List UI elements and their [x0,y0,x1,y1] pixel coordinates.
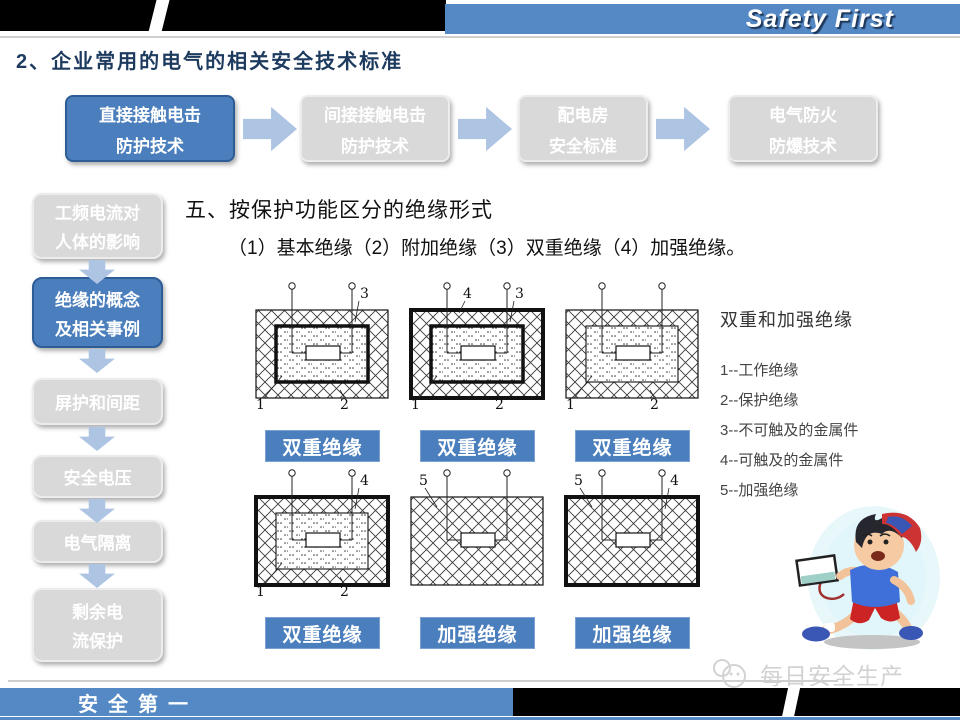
flow-step-label: 直接接触电击 [67,101,233,126]
legend-items: 1--工作绝缘2--保护绝缘3--不可触及的金属件4--可触及的金属件5--加强… [720,356,958,506]
diagram-caption: 加强绝缘 [575,617,690,649]
diagram-part-number: 3 [360,286,369,302]
watermark-text: 每日安全生产 [760,657,904,691]
sidebar-item-4[interactable]: 安全电压 [32,455,163,498]
diagram-part-number: 1 [566,397,575,413]
flow-step-2[interactable]: 间接接触电击防护技术 [300,95,450,162]
flow-step-label: 间接接触电击 [302,101,448,126]
sidebar-item-label: 屏护和间距 [34,389,161,414]
sidebar-item-label: 流保护 [34,627,161,652]
insulation-diagram-2: 4312 [407,278,547,414]
legend-item-3: 3--不可触及的金属件 [720,416,958,446]
diagram-part-number: 5 [574,473,583,489]
header-banner: Safety First [445,4,960,34]
diagram-caption: 双重绝缘 [265,430,380,462]
diagram-part-number: 4 [360,473,369,489]
header-divider-line [0,36,960,38]
flow-step-3[interactable]: 配电房安全标准 [518,95,648,162]
diagram-caption: 双重绝缘 [420,430,535,462]
flow-step-label: 电气防火 [730,101,876,126]
sidebar-item-2[interactable]: 绝缘的概念及相关事例 [32,277,163,348]
legend: 双重和加强绝缘 1--工作绝缘2--保护绝缘3--不可触及的金属件4--可触及的… [720,306,958,506]
diagram-part-number: 1 [256,397,265,413]
down-arrow-icon [79,349,115,373]
flow-step-label: 防护技术 [302,132,448,157]
watermark-logo-icon [710,658,756,690]
diagram-part-number: 1 [411,397,420,413]
flow-step-1[interactable]: 直接接触电击防护技术 [65,95,235,162]
footer-blue-bar: 安全第一 [0,688,513,716]
sidebar-item-5[interactable]: 电气隔离 [32,520,163,563]
diagram-cell-2: 4312双重绝缘 [407,278,547,464]
diagram-cell-5: 5加强绝缘 [407,465,547,651]
insulation-diagram-1: 312 [252,278,392,414]
diagram-part-number: 2 [340,397,349,413]
diagram-cell-3: 12双重绝缘 [562,278,702,464]
sidebar-item-label: 电气隔离 [34,529,161,554]
sidebar-item-label: 安全电压 [34,464,161,489]
sidebar-item-label: 工频电流对 [34,199,161,224]
section-heading: 五、按保护功能区分的绝缘形式 [185,194,493,224]
footer-black-bar [513,688,960,716]
sidebar-item-label: 剩余电 [34,598,161,623]
diagram-part-number: 4 [463,286,472,302]
down-arrow-icon [79,564,115,588]
flow-step-label: 防爆技术 [730,132,876,157]
flow-step-label: 配电房 [520,101,646,126]
right-arrow-icon [458,106,512,152]
diagram-cell-6: 54加强绝缘 [562,465,702,651]
legend-item-1: 1--工作绝缘 [720,356,958,386]
sidebar-item-label: 人体的影响 [34,228,161,253]
diagram-part-number: 4 [670,473,679,489]
diagram-part-number: 5 [419,473,428,489]
footer-divider-line [8,680,838,682]
down-arrow-icon [79,427,115,451]
insulation-diagram-4: 412 [252,465,392,601]
insulation-diagram-3: 12 [562,278,702,414]
diagram-part-number: 2 [340,584,349,600]
slide: Safety First 2、企业常用的电气的相关安全技术标准 直接接触电击防护… [0,0,960,720]
flow-step-label: 安全标准 [520,132,646,157]
diagram-caption: 加强绝缘 [420,617,535,649]
section-subheading: （1）基本绝缘（2）附加绝缘（3）双重绝缘（4）加强绝缘。 [228,233,745,260]
right-arrow-icon [656,106,710,152]
sidebar-item-6[interactable]: 剩余电流保护 [32,588,163,662]
legend-item-4: 4--可触及的金属件 [720,446,958,476]
insulation-diagram-5: 5 [407,465,547,601]
diagram-cell-1: 312双重绝缘 [252,278,392,464]
insulation-diagram-6: 54 [562,465,702,601]
sidebar-item-1[interactable]: 工频电流对人体的影响 [32,193,163,259]
sidebar-item-label: 及相关事例 [34,315,161,340]
sidebar-item-label: 绝缘的概念 [34,286,161,311]
page-title: 2、企业常用的电气的相关安全技术标准 [16,45,403,74]
diagram-part-number: 2 [650,397,659,413]
header-black-bar [0,0,446,31]
diagram-part-number: 3 [515,286,524,302]
watermark: 每日安全生产 [710,657,904,691]
cartoon-boy-illustration [782,500,954,658]
flow-step-4[interactable]: 电气防火防爆技术 [728,95,878,162]
legend-title: 双重和加强绝缘 [720,306,958,332]
flow-step-label: 防护技术 [67,132,233,157]
legend-item-2: 2--保护绝缘 [720,386,958,416]
diagram-part-number: 2 [495,397,504,413]
diagram-cell-4: 412双重绝缘 [252,465,392,651]
diagram-caption: 双重绝缘 [575,430,690,462]
diagram-part-number: 1 [256,584,265,600]
footer-slogan: 安全第一 [0,688,198,717]
sidebar-item-3[interactable]: 屏护和间距 [32,378,163,425]
brand-text: Safety First [746,5,894,34]
diagram-caption: 双重绝缘 [265,617,380,649]
right-arrow-icon [243,106,297,152]
